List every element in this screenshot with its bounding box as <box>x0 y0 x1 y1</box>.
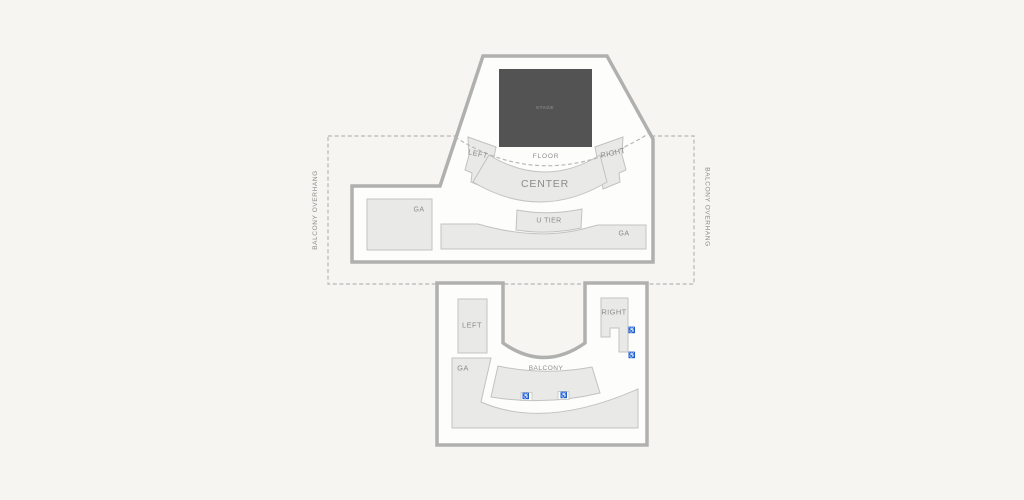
balcony-ga-label: GA <box>457 364 469 372</box>
venue-seating-chart: STAGE FLOOR LEFT RIGHT CENTER U TIER GA … <box>0 0 1024 500</box>
wheelchair-icon: ♿ <box>628 353 635 359</box>
u-tier-label: U TIER <box>536 218 561 225</box>
wheelchair-icon: ♿ <box>628 328 635 334</box>
ga-west-label: GA <box>414 207 425 214</box>
wheelchair-icon: ♿ <box>522 394 529 400</box>
center-section-label: CENTER <box>521 179 569 190</box>
seating-map-svg <box>0 0 1024 500</box>
balcony-right-label: RIGHT <box>601 308 626 316</box>
ga-east-label: GA <box>619 231 630 238</box>
balcony-left-label: LEFT <box>462 321 482 329</box>
overhang-right-label: BALCONY OVERHANG <box>703 167 710 247</box>
stage-label: STAGE <box>536 106 554 111</box>
overhang-left-label: BALCONY OVERHANG <box>313 170 320 250</box>
wheelchair-icon: ♿ <box>560 393 567 399</box>
floor-label: FLOOR <box>533 154 559 161</box>
balcony-section-label: BALCONY <box>529 366 564 373</box>
